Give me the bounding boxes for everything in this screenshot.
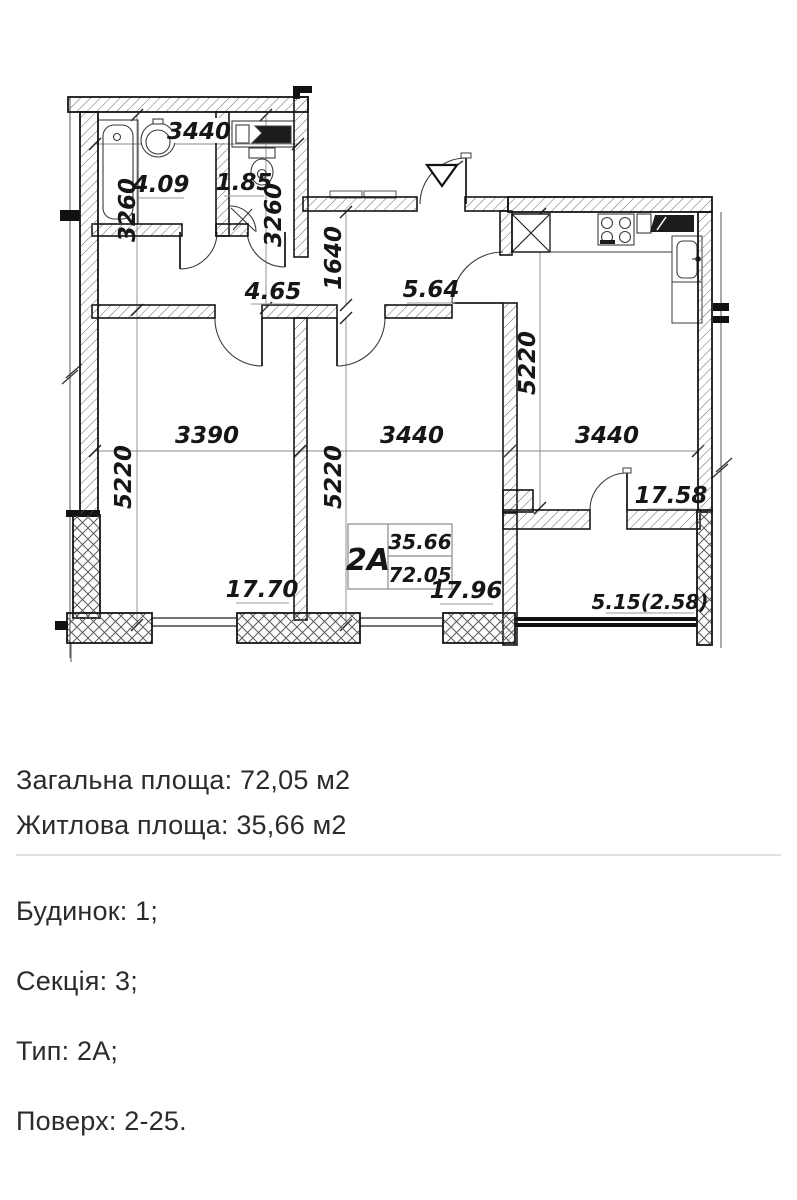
dim-hall-width: 1640 — [321, 226, 347, 290]
dim-kitchen-width: 3440 — [575, 423, 639, 449]
entry-arrow — [427, 165, 457, 186]
living-area-text: Житлова площа: 35,66 м2 — [16, 810, 347, 841]
dim-bedroom1-width: 3390 — [175, 423, 239, 449]
bedroom1-door — [215, 318, 262, 366]
area-hall-right: 5.64 — [403, 277, 460, 303]
building-text: Будинок: 1; — [16, 896, 158, 927]
stove — [598, 214, 634, 245]
area-bedroom1: 17.70 — [226, 577, 299, 603]
dim-wc-height: 3260 — [261, 183, 287, 247]
bathroom-door — [180, 232, 217, 269]
unit-type-text: Тип: 2А; — [16, 1036, 118, 1067]
floor-plan: 2А 35.66 72.05 3440 4.09 1.85 3260 3260 … — [0, 0, 797, 700]
balcony-door — [590, 468, 631, 510]
area-bedroom2: 17.96 — [430, 578, 503, 604]
kitchen-sink-counter — [637, 214, 694, 233]
area-balcony: 5.15(2.58) — [592, 590, 709, 614]
break-marks — [62, 364, 732, 478]
kitchen-door — [452, 252, 503, 303]
bedroom2-door — [337, 318, 385, 366]
dim-bedroom2-height: 5220 — [321, 445, 347, 509]
area-hall-left: 4.65 — [244, 279, 302, 305]
dim-bathroom-height: 3260 — [115, 178, 141, 242]
unit-type-label: 2А — [346, 543, 390, 578]
dim-bedroom1-height: 5220 — [111, 445, 137, 509]
listing-page: 2А 35.66 72.05 3440 4.09 1.85 3260 3260 … — [0, 0, 797, 1200]
dim-bedroom2-width: 3440 — [380, 423, 444, 449]
dim-kitchen-height: 5220 — [515, 331, 541, 395]
balcony-rail — [515, 617, 697, 627]
floors-text: Поверх: 2-25. — [16, 1106, 187, 1137]
total-area-text: Загальна площа: 72,05 м2 — [16, 765, 350, 796]
area-kitchen-living: 17.58 — [635, 483, 708, 509]
vent-shaft — [512, 214, 550, 252]
divider-line — [16, 854, 781, 856]
dim-san-block-width: 3440 — [167, 119, 231, 145]
unit-living-area: 35.66 — [388, 530, 451, 554]
section-text: Секція: 3; — [16, 966, 138, 997]
wc-shelf — [232, 121, 294, 147]
